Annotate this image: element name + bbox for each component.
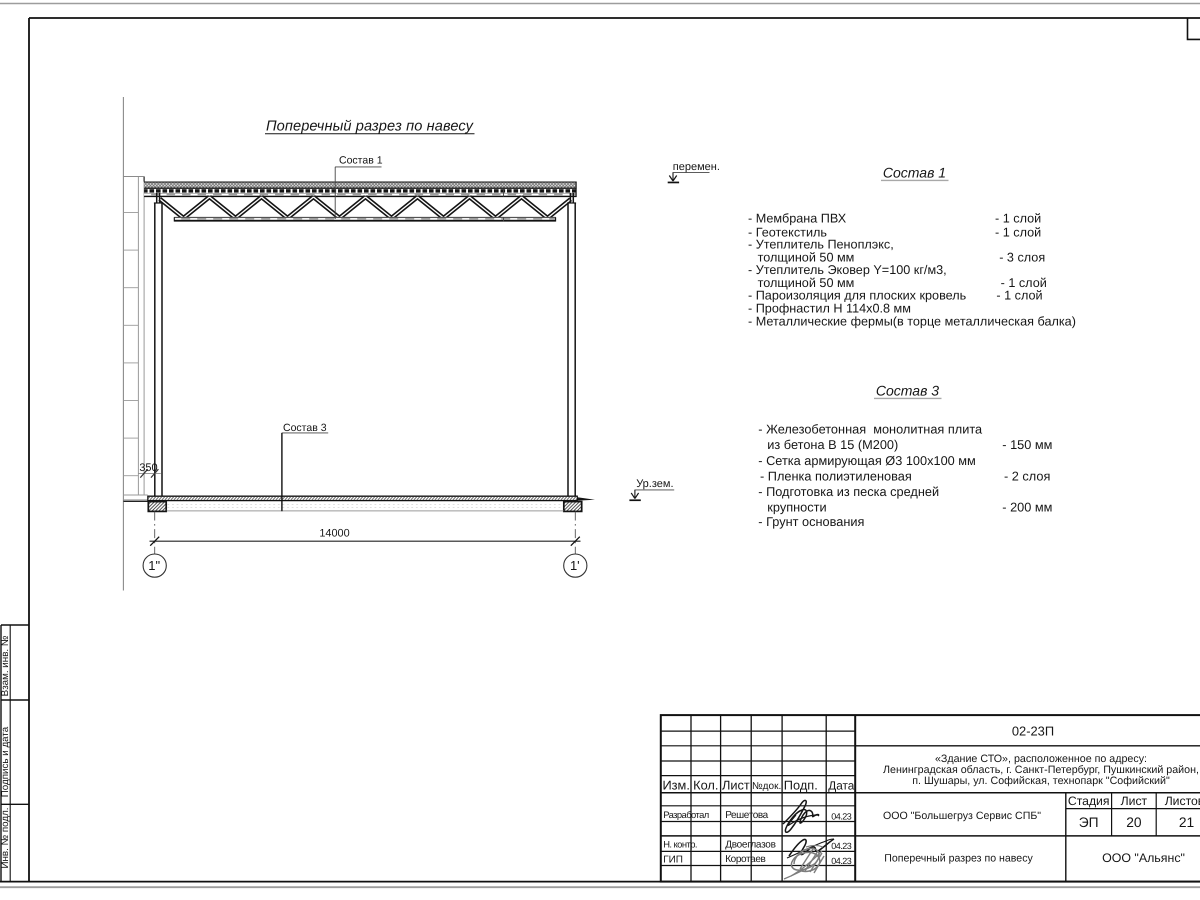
- svg-text:Кол.: Кол.: [693, 777, 718, 792]
- svg-text:№док.: №док.: [752, 781, 781, 792]
- svg-text:Ур.зем.: Ур.зем.: [636, 478, 673, 490]
- svg-text:- Грунт основания: - Грунт основания: [758, 514, 864, 529]
- svg-text:Состав 1: Состав 1: [339, 154, 383, 166]
- svg-text:04.23: 04.23: [831, 856, 852, 866]
- svg-text:Коротаев: Коротаев: [725, 854, 765, 865]
- svg-text:- 150 мм: - 150 мм: [1002, 437, 1052, 452]
- svg-text:крупности: крупности: [767, 499, 826, 514]
- svg-text:- 200 мм: - 200 мм: [1002, 499, 1052, 514]
- svg-text:Разработал: Разработал: [663, 809, 709, 820]
- svg-text:- 1 слой: - 1 слой: [996, 289, 1042, 303]
- svg-text:350: 350: [139, 462, 157, 474]
- svg-text:Подпись и дата: Подпись и дата: [0, 726, 11, 797]
- svg-text:- Мембрана ПВХ: - Мембрана ПВХ: [748, 212, 847, 226]
- svg-text:Изм.: Изм.: [662, 777, 689, 792]
- svg-text:из бетона В 15 (М200): из бетона В 15 (М200): [767, 437, 898, 452]
- svg-text:ЭП: ЭП: [1079, 815, 1099, 830]
- svg-text:02-23П: 02-23П: [1012, 723, 1054, 738]
- svg-text:- 2 слоя: - 2 слоя: [1004, 468, 1050, 483]
- svg-text:- Пленка полиэтиленовая: - Пленка полиэтиленовая: [760, 468, 912, 483]
- svg-text:Поперечный разрез по навесу: Поперечный разрез по навесу: [266, 119, 475, 135]
- svg-text:Н. контр.: Н. контр.: [663, 838, 697, 849]
- svg-text:- Подготовка из песка средней: - Подготовка из песка средней: [758, 484, 939, 499]
- svg-text:Состав 3: Состав 3: [283, 422, 327, 434]
- svg-text:Инв. № подл.: Инв. № подл.: [0, 807, 11, 868]
- svg-text:20: 20: [1126, 815, 1142, 830]
- svg-text:Решетова: Решетова: [725, 810, 768, 821]
- svg-text:- 3 слоя: - 3 слоя: [999, 251, 1045, 265]
- svg-text:Подп.: Подп.: [784, 777, 818, 792]
- svg-text:- Сетка армирующая Ø3 100х100: - Сетка армирующая Ø3 100х100 мм: [758, 453, 976, 468]
- svg-text:Состав 1: Состав 1: [883, 164, 946, 180]
- svg-text:ГИП: ГИП: [663, 854, 683, 865]
- svg-text:1": 1": [148, 558, 160, 573]
- svg-text:Поперечный разрез по навесу: Поперечный разрез по навесу: [884, 852, 1033, 864]
- svg-text:- 1 слой: - 1 слой: [995, 212, 1041, 226]
- svg-text:Взам. инв. №: Взам. инв. №: [0, 635, 11, 696]
- svg-text:- Профнастил Н 114х0.8 мм: - Профнастил Н 114х0.8 мм: [748, 301, 911, 315]
- svg-text:перемен.: перемен.: [673, 161, 720, 173]
- svg-text:ООО "Большегруз Сервис СПБ": ООО "Большегруз Сервис СПБ": [883, 810, 1041, 822]
- svg-text:- Железобетонная монолитная п: - Железобетонная монолитная плита: [758, 422, 983, 437]
- svg-text:1': 1': [570, 558, 580, 573]
- svg-text:04.23: 04.23: [831, 811, 852, 821]
- svg-text:Листов: Листов: [1165, 794, 1200, 808]
- svg-text:Состав 3: Состав 3: [876, 382, 939, 398]
- svg-text:ООО "Альянс": ООО "Альянс": [1102, 851, 1185, 865]
- svg-text:Лист: Лист: [722, 777, 750, 792]
- svg-text:04.23: 04.23: [831, 841, 852, 851]
- svg-text:Стадия: Стадия: [1068, 794, 1110, 808]
- svg-text:Лист: Лист: [1121, 794, 1148, 808]
- svg-text:14000: 14000: [319, 527, 349, 539]
- svg-text:- 1 слой: - 1 слой: [995, 225, 1041, 239]
- svg-text:п. Шушары, ул. Софийская, техн: п. Шушары, ул. Софийская, технопарк "Соф…: [912, 775, 1170, 787]
- svg-text:Двоеглазов: Двоеглазов: [725, 840, 775, 851]
- svg-text:Дата: Дата: [828, 778, 855, 792]
- svg-text:- Металлические фермы(в торце: - Металлические фермы(в торце металличес…: [748, 315, 1076, 329]
- svg-text:21: 21: [1179, 815, 1194, 830]
